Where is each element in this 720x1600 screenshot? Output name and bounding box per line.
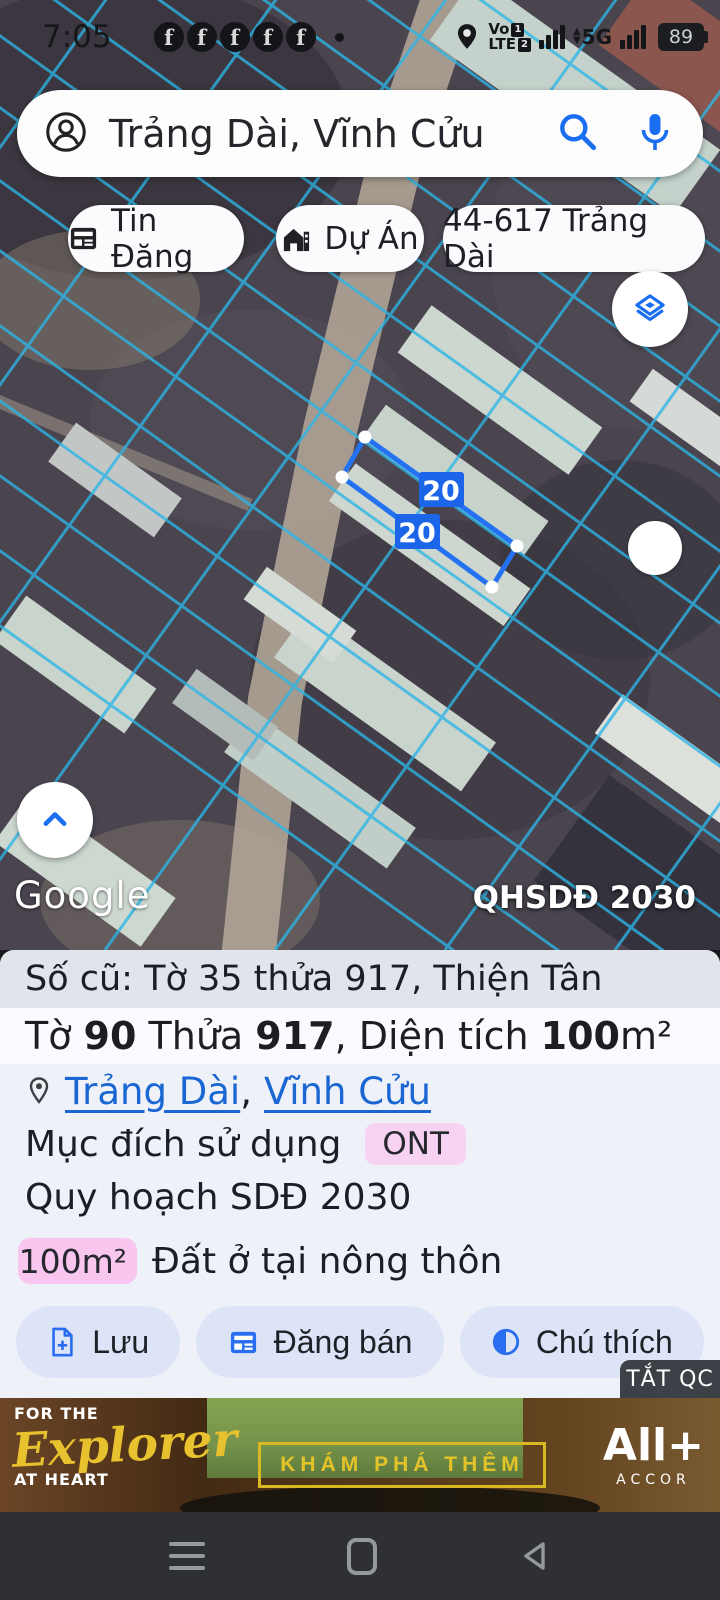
layers-button[interactable] (612, 271, 688, 347)
facebook-icon: f (187, 22, 217, 52)
area-badge: 100m² (18, 1238, 137, 1284)
button-label: Lưu (92, 1324, 149, 1361)
search-bar[interactable]: Trảng Dài, Vĩnh Cửu (17, 90, 703, 177)
parcel-vertex[interactable] (336, 471, 349, 484)
planning-map-label: QHSDĐ 2030 (473, 880, 696, 916)
ad-banner[interactable]: FOR THE Explorer AT HEART KHÁM PHÁ THÊM … (0, 1398, 720, 1512)
purpose-label: Mục đích sử dụng (25, 1124, 341, 1165)
location-links: Trảng Dài,Vĩnh Cửu (0, 1064, 720, 1118)
map-pin-outline-icon (27, 1075, 51, 1107)
ad-brand-logo: All+ ACCOR (603, 1424, 704, 1488)
dimension-label: 20 (398, 518, 436, 549)
sim2-icon: 2 (518, 38, 531, 52)
facebook-icon: f (286, 22, 316, 52)
layers-icon (629, 288, 671, 330)
google-watermark: Google (14, 874, 150, 917)
data-arrows-icon: ▲▼ (573, 27, 581, 45)
ad-brand-sub: ACCOR (603, 1472, 704, 1488)
close-ad-button[interactable]: TẮT QC (620, 1360, 720, 1398)
land-type-text: Đất ở tại nông thôn (152, 1241, 502, 1282)
land-use-code-badge: ONT (365, 1123, 466, 1165)
chevron-up-icon (33, 798, 77, 842)
post-listing-button[interactable]: Đăng bán (196, 1306, 443, 1378)
house-icon (281, 223, 312, 254)
notification-dot-icon (335, 33, 344, 42)
android-nav-bar (0, 1512, 720, 1600)
ward-link[interactable]: Trảng Dài (65, 1070, 240, 1113)
search-input[interactable]: Trảng Dài, Vĩnh Cửu (109, 112, 555, 156)
status-bar: 7:05 f f f f f Vo1 LTE2 ▲▼ 5G 89 (0, 0, 720, 64)
ad-cta-button[interactable]: KHÁM PHÁ THÊM (258, 1442, 546, 1488)
chip-listings[interactable]: Tin Đăng (68, 205, 244, 272)
parcel-vertex[interactable] (511, 540, 524, 553)
button-label: Đăng bán (274, 1324, 413, 1361)
chip-label: Dự Án (324, 221, 418, 257)
parcel-title: Tờ 90 Thửa 917, Diện tích 100m² (0, 1008, 720, 1064)
facebook-icon: f (253, 22, 283, 52)
network-type: ▲▼ 5G (573, 25, 612, 49)
map-marker-dot[interactable] (628, 521, 682, 575)
location-pin-icon (454, 22, 480, 52)
planning-text: Quy hoạch SDĐ 2030 (0, 1170, 720, 1224)
signal-bars-icon (539, 25, 565, 49)
volte-indicator: Vo1 LTE2 (488, 22, 531, 52)
district-link[interactable]: Vĩnh Cửu (264, 1070, 431, 1113)
parcel-vertex[interactable] (486, 581, 499, 594)
newspaper-icon (68, 223, 99, 254)
person-circle-icon[interactable] (43, 109, 89, 159)
dimension-label: 20 (422, 476, 460, 507)
chip-projects[interactable]: Dự Án (276, 205, 424, 272)
back-icon[interactable] (519, 1539, 551, 1573)
old-reference: Số cũ: Tờ 35 thửa 917, Thiện Tân (0, 950, 720, 1008)
home-icon[interactable] (347, 1538, 377, 1575)
facebook-icon: f (220, 22, 250, 52)
mic-icon[interactable] (633, 109, 677, 159)
signal-bars-icon (620, 25, 646, 49)
expand-panel-button[interactable] (17, 782, 93, 858)
ad-tagline: FOR THE Explorer AT HEART (14, 1404, 237, 1489)
chip-label: Tin Đăng (111, 203, 244, 275)
file-plus-icon (47, 1326, 77, 1358)
menu-icon[interactable] (169, 1542, 205, 1570)
ad-tagline-script: Explorer (11, 1417, 238, 1475)
search-icon[interactable] (555, 109, 601, 159)
chip-label: 44-617 Trảng Dài (443, 203, 705, 275)
notification-icons: f f f f f (154, 22, 344, 52)
button-label: Chú thích (536, 1324, 673, 1361)
facebook-icon: f (154, 22, 184, 52)
clock: 7:05 (42, 19, 112, 55)
phone-screen: 20 20 7:05 f f f f f Vo1 LTE2 (0, 0, 720, 1600)
contrast-icon (491, 1327, 521, 1357)
save-button[interactable]: Lưu (16, 1306, 180, 1378)
battery-icon: 89 (658, 23, 704, 51)
link-separator: , (240, 1070, 252, 1113)
ad-background-tub (180, 1486, 600, 1512)
parcel-info-panel: Số cũ: Tờ 35 thửa 917, Thiện Tân Tờ 90 T… (0, 950, 720, 1398)
ad-brand-name: All+ (603, 1424, 704, 1468)
chip-parcel-address[interactable]: 44-617 Trảng Dài (443, 205, 705, 272)
parcel-vertex[interactable] (359, 431, 372, 444)
calendar-list-icon (228, 1327, 259, 1358)
